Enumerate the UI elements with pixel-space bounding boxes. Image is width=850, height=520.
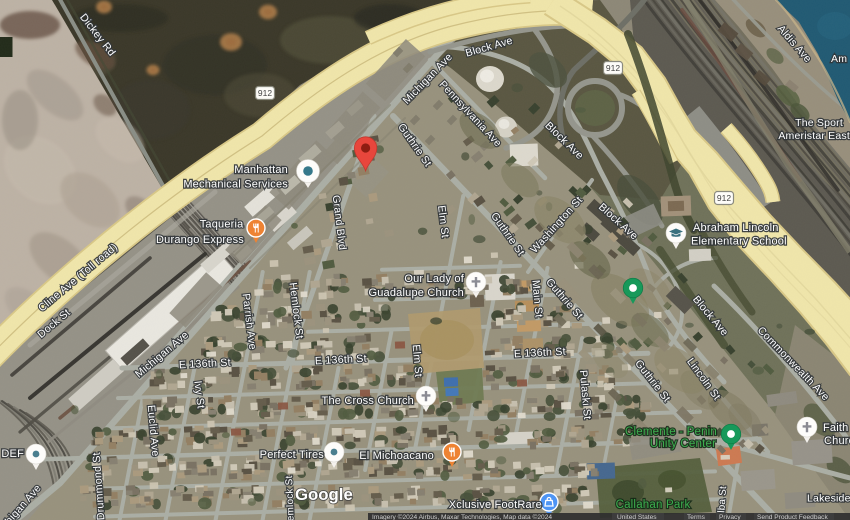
svg-text:Google: Google <box>295 485 353 504</box>
svg-text:Abraham Lincoln: Abraham Lincoln <box>693 222 779 234</box>
svg-text:912: 912 <box>258 88 272 98</box>
svg-text:Callahan Park: Callahan Park <box>616 499 691 511</box>
svg-text:Elementary School: Elementary School <box>691 236 787 248</box>
svg-text:Manhattan: Manhattan <box>234 164 288 176</box>
svg-text:Church: Church <box>824 435 850 447</box>
svg-text:Ameristar East: Ameristar East <box>778 130 850 142</box>
svg-text:Privacy: Privacy <box>719 514 741 520</box>
svg-text:Durango Express: Durango Express <box>156 234 244 246</box>
svg-text:Perfect Tires: Perfect Tires <box>260 449 325 461</box>
svg-text:Clemente - Penin: Clemente - Penin <box>625 426 717 438</box>
svg-text:Terms: Terms <box>687 514 706 520</box>
svg-text:Mechanical Services: Mechanical Services <box>183 179 288 191</box>
svg-text:DEF: DEF <box>1 448 24 460</box>
svg-text:912: 912 <box>717 193 731 203</box>
svg-text:912: 912 <box>606 63 620 73</box>
svg-text:Imagery ©2024 Airbus, Maxar Te: Imagery ©2024 Airbus, Maxar Technologies… <box>372 513 552 520</box>
svg-text:Guadalupe Church: Guadalupe Church <box>368 287 464 299</box>
svg-text:El Michoacano: El Michoacano <box>359 450 434 462</box>
svg-text:Taqueria: Taqueria <box>200 219 244 231</box>
svg-text:Send Product Feedback: Send Product Feedback <box>757 514 828 520</box>
svg-text:Faith: Faith <box>823 422 848 434</box>
svg-text:The Sport: The Sport <box>795 117 843 129</box>
svg-text:Am: Am <box>831 53 847 65</box>
svg-text:Lakeside: Lakeside <box>807 493 850 505</box>
svg-text:Our Lady of: Our Lady of <box>404 273 464 285</box>
svg-text:Unity Center: Unity Center <box>650 438 716 450</box>
svg-text:United States: United States <box>617 514 657 520</box>
svg-text:The Cross Church: The Cross Church <box>322 395 414 407</box>
svg-text:Xclusive FootRare: Xclusive FootRare <box>449 499 542 511</box>
